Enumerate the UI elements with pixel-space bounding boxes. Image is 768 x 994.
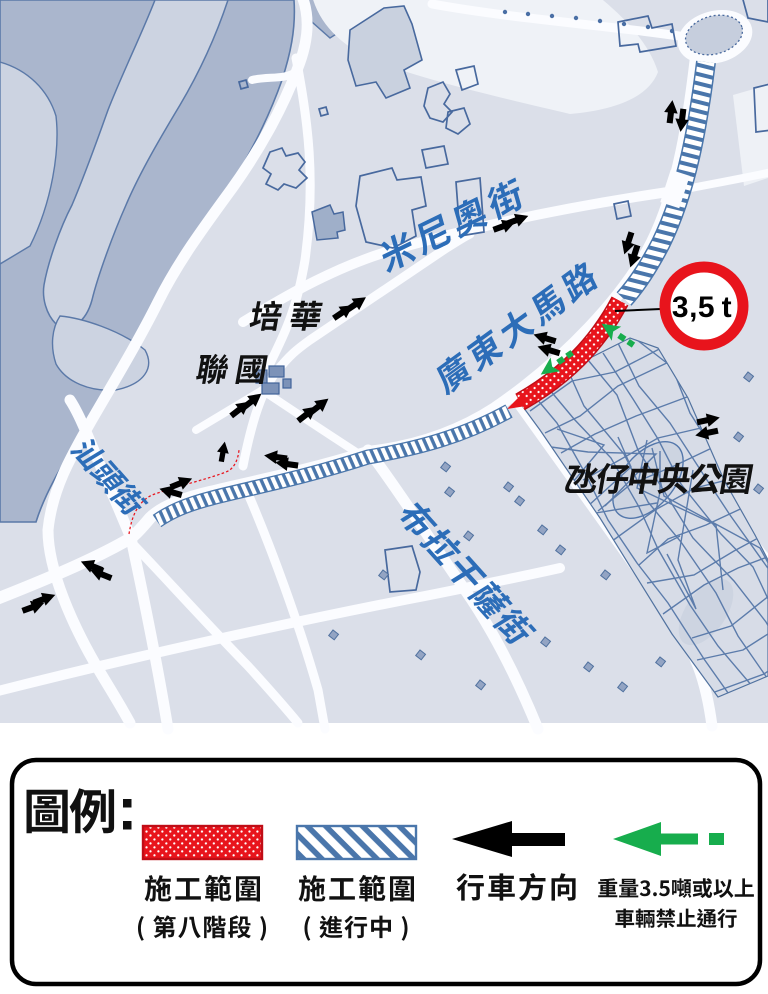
svg-text:3,5 t: 3,5 t <box>672 291 732 324</box>
